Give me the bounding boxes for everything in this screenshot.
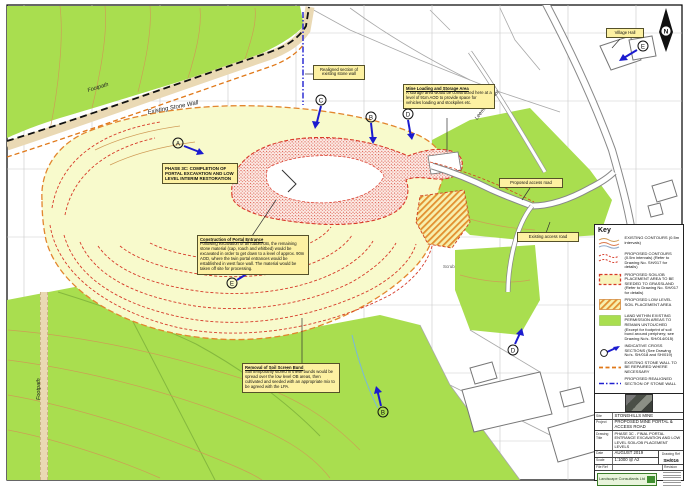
existing-contours-symbol <box>598 236 622 249</box>
project-label: Project <box>595 420 613 431</box>
portal-entrance-callout: Construction of Portal Entrance Followin… <box>197 235 309 275</box>
existing-access-road-text: Existing access road <box>529 234 567 239</box>
site-value: STONEHILLS MINE <box>613 413 683 419</box>
key-title: Key <box>598 227 681 234</box>
north-label: N <box>664 29 669 36</box>
proposed-access-road-text: Proposed access road <box>510 180 552 185</box>
drawing-title-value: PHASE 3C - FINAL PORTAL ENTRANCE EXCAVAT… <box>613 431 683 450</box>
title-block-logo-row <box>595 394 683 413</box>
drawing-title-label: Drawing Title <box>595 431 613 450</box>
realigned-wall-callout: Realigned section of existing stone wall <box>313 65 365 80</box>
drawing-title-row: Drawing Title PHASE 3C - FINAL PORTAL EN… <box>595 431 683 451</box>
file-ref-value <box>613 465 662 470</box>
small-print-lines <box>659 471 683 486</box>
untouched-land-symbol <box>598 314 622 327</box>
footpath-bottom-label: Footpath <box>36 378 42 400</box>
drawing-ref-label: Drawing Ref <box>662 452 680 456</box>
revision-label: Revision <box>662 465 683 470</box>
title-block-footer: Landscape Consultants Ltd <box>595 471 683 486</box>
project-value: PROPOSED MINE PORTAL & ACCESS ROAD <box>613 420 683 431</box>
key-item: LAND WITHIN EXISTING PERMISSION AREAS TO… <box>598 314 681 342</box>
key-item: EXISTING STONE WALL TO BE REPAIRED WHERE… <box>598 361 681 375</box>
date-label: Date <box>595 451 613 457</box>
svg-text:C: C <box>319 97 324 104</box>
svg-text:D: D <box>511 347 516 354</box>
consultant-name: Landscape Consultants Ltd <box>599 477 645 481</box>
stone-wall-repair-symbol <box>598 361 622 374</box>
key-item: PROPOSED CONTOURS (0.5m intervals) (Refe… <box>598 252 681 271</box>
site-plan-sheet: A C B D <box>0 0 688 486</box>
mine-loading-callout: Mine Loading and Storage Area A storage … <box>403 84 495 109</box>
village-hall-text: Village Hall <box>615 30 636 35</box>
consultant-logo-mark <box>647 476 655 483</box>
phase-3c-text: PHASE 3C: COMPLETION OF PORTAL EXCAVATIO… <box>165 166 234 181</box>
svg-text:B: B <box>381 409 385 416</box>
key-item: EXISTING CONTOURS (0.5m intervals) <box>598 236 681 249</box>
file-ref-label: File Ref <box>595 465 613 470</box>
proposed-contours-symbol <box>598 252 622 265</box>
low-level-soil-symbol <box>598 298 622 311</box>
svg-text:D: D <box>406 111 411 118</box>
realigned-wall-text: Realigned section of existing stone wall <box>320 67 358 77</box>
soil-placement-symbol <box>598 273 622 286</box>
svg-text:E: E <box>230 280 234 287</box>
village-hall-callout: Village Hall <box>606 28 644 38</box>
key-panel: Key EXISTING CONTOURS (0.5m intervals) P… <box>594 224 684 394</box>
phase-3c-callout: PHASE 3C: COMPLETION OF PORTAL EXCAVATIO… <box>162 163 238 184</box>
svg-text:E: E <box>641 43 645 50</box>
portal-entrance-body: Following excavation of all rubble/OB, t… <box>200 241 304 271</box>
proposed-access-road-callout: Proposed access road <box>499 178 563 188</box>
scale-label: Scale <box>595 458 613 464</box>
cross-section-symbol <box>598 344 622 357</box>
key-item: PROPOSED LOW LEVEL SOIL PLACEMENT AREA <box>598 298 681 311</box>
date-scale-ref-rows: Date AUGUST 2019 Scale 1:1000 @ A2 Drawi… <box>595 451 683 465</box>
title-block: Site STONEHILLS MINE Project PROPOSED MI… <box>594 393 684 481</box>
soil-bund-body: Soil temporarily stored in these bunds w… <box>245 369 335 389</box>
key-item: PROPOSED REALIGNED SECTION OF STONE WALL <box>598 377 681 390</box>
site-label: Site <box>595 413 613 419</box>
project-row: Project PROPOSED MINE PORTAL & ACCESS RO… <box>595 420 683 432</box>
key-item: INDICATIVE CROSS SECTIONS (See Drawing N… <box>598 344 681 358</box>
scale-value: 1:1000 @ A2 <box>613 458 658 464</box>
svg-text:B: B <box>369 114 373 121</box>
existing-access-road-callout: Existing access road <box>517 232 579 242</box>
date-value: AUGUST 2019 <box>613 451 658 457</box>
soil-bund-callout: Removal of Soil Screen Bund Soil tempora… <box>242 363 340 393</box>
key-item: PROPOSED SOIL/OB PLACEMENT AREA TO BE SE… <box>598 273 681 296</box>
company-logo <box>625 394 653 412</box>
realigned-wall-symbol <box>598 377 622 390</box>
drawing-ref-value: SH/016 <box>663 458 678 463</box>
mine-loading-body: A storage area would be constructed here… <box>406 90 492 105</box>
consultant-box: Landscape Consultants Ltd <box>597 473 657 486</box>
scrub-label: Scrub <box>443 264 455 269</box>
